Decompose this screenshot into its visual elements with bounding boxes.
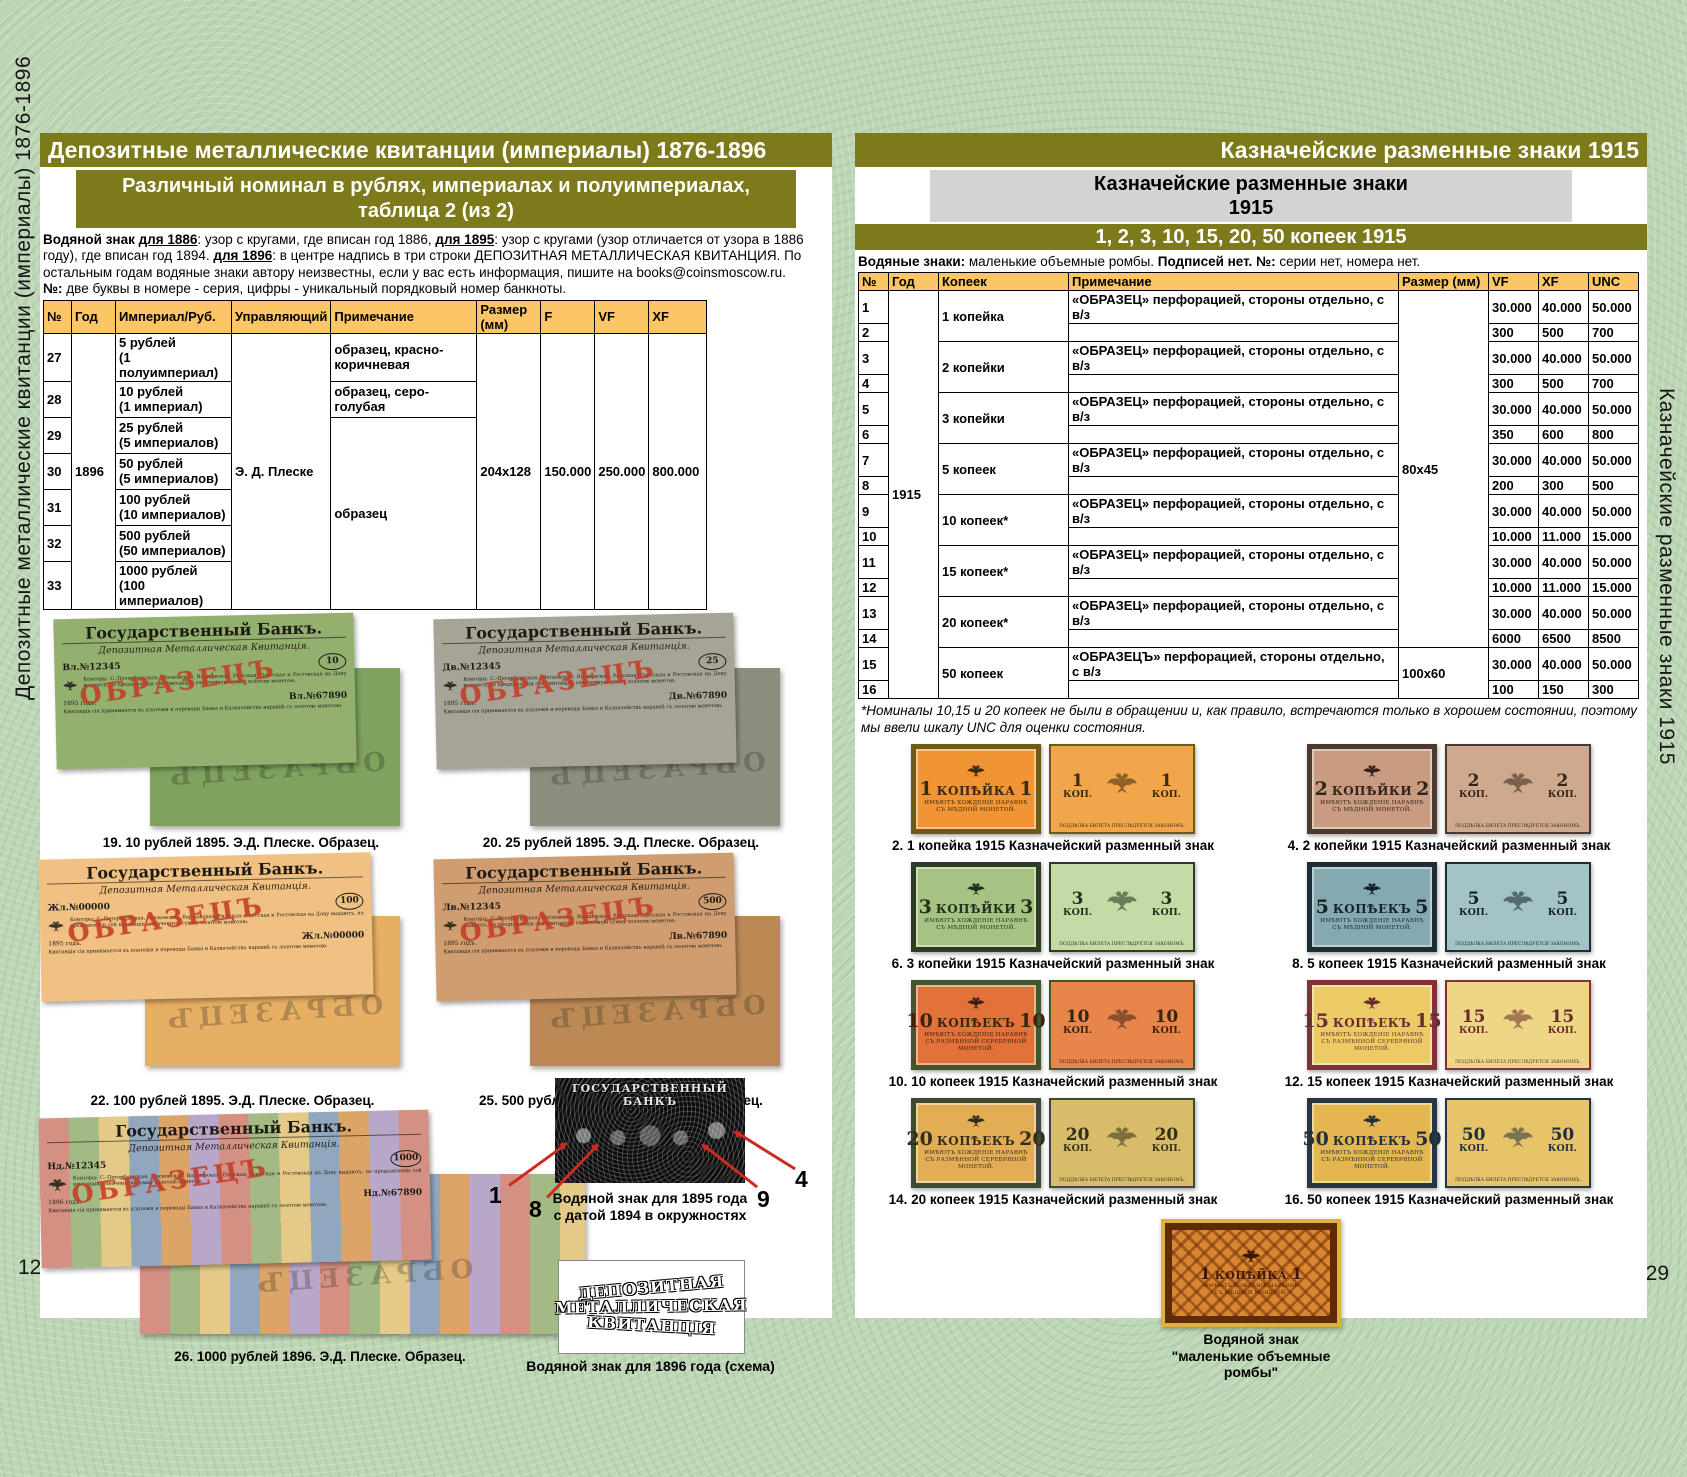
cell-xf: 300	[1539, 477, 1589, 495]
intro-segment: маленькие объемные ромбы.	[965, 254, 1158, 269]
table-row: 119151 копейка«ОБРАЗЕЦ» перфорацией, сто…	[859, 291, 1639, 324]
serial-number: Жл.№00000	[47, 902, 110, 913]
serial-number-2: Нд.№67890	[363, 1188, 422, 1199]
watermark-1895-image: ГОСУДАРСТВЕННЫЙ БАНКЪ	[555, 1078, 745, 1183]
back-small-text: ПОДДѢЛКА БИЛЕТА ПРЕСЛѢДУЕТСЯ ЗАКОНОМЪ.	[1447, 942, 1589, 947]
banknote-back-image: 50КОП.50КОП.ПОДДѢЛКА БИЛЕТА ПРЕСЛѢДУЕТСЯ…	[1445, 1098, 1591, 1188]
banknote-caption: 10. 10 копеек 1915 Казначейский разменны…	[883, 1074, 1223, 1089]
table-row: 32 копейки«ОБРАЗЕЦ» перфорацией, стороны…	[859, 342, 1639, 375]
serial-number: Нд.№12345	[47, 1160, 106, 1171]
figure-caption: 20. 25 рублей 1895. Э.Д. Плеске. Образец…	[435, 835, 807, 850]
cell-no: 14	[859, 630, 889, 648]
denomination-line: 50КОПѢЕКЪ50	[1302, 1128, 1441, 1150]
cell-vf: 200	[1489, 477, 1539, 495]
intro-segment: для 1895	[435, 232, 494, 247]
denomination-badge: 500	[698, 893, 726, 911]
cell-size: 100x60	[1399, 648, 1489, 699]
cell-year: 1915	[889, 291, 939, 699]
cell-no: 31	[44, 489, 72, 525]
imperial-eagle-icon	[1501, 889, 1535, 913]
denomination-line: 1КОПѢЙКА1	[919, 778, 1032, 800]
banknote-front-image: Государственный Банкъ.Депозитная Металли…	[53, 612, 356, 769]
imperial-eagle-icon	[1105, 1125, 1139, 1149]
cell-f: 150.000	[541, 333, 595, 609]
serial-number-2: Дв.№67890	[669, 691, 728, 702]
column-header: Год	[889, 273, 939, 291]
cell-unc: 50.000	[1589, 495, 1639, 528]
denomination-line: 5КОПѢЕКЪ5	[1316, 896, 1429, 918]
figure-caption: 22. 100 рублей 1895. Э.Д. Плеске. Образе…	[40, 1093, 425, 1108]
cell-unc: 50.000	[1589, 291, 1639, 324]
right-watermark-figure: 1КОПѢЙКА1 ИМѢЮТЪ ХОЖДЕНІЕ НАРАВНѢ СЪ МѢД…	[855, 1219, 1647, 1381]
serial-number: Дв.№12345	[442, 661, 501, 672]
intro-segment: Водяные знаки:	[858, 254, 965, 269]
cell-note: «ОБРАЗЕЦ» перфорацией, стороны отдельно,…	[1069, 393, 1399, 426]
imperial-eagle-icon	[1105, 771, 1139, 795]
serial-number: Вл.№12345	[62, 661, 120, 672]
back-eagle	[1501, 889, 1535, 918]
cell-note: «ОБРАЗЕЦ» перфорацией, стороны отдельно,…	[1069, 546, 1399, 579]
imperial-eagle-icon	[443, 917, 458, 935]
banknote-caption: 16. 50 копеек 1915 Казначейский разменны…	[1279, 1192, 1619, 1207]
left-catalog-table: №ГодИмпериал/Руб.УправляющийПримечаниеРа…	[43, 300, 707, 610]
figure-caption: 19. 10 рублей 1895. Э.Д. Плеске. Образец…	[55, 835, 427, 850]
column-header: Размер (мм)	[477, 300, 541, 333]
back-corner-value: 2КОП.	[1548, 773, 1577, 800]
cell-xf: 40.000	[1539, 291, 1589, 324]
denomination-badge: 1000	[390, 1150, 421, 1168]
banknote-front-image: Государственный Банкъ.Депозитная Металли…	[433, 612, 736, 769]
banknote-pair: 1КОПѢЙКА1ИМѢЮТЪ ХОЖДЕНІЕ НАРАВНѢСЪ МѢДНО…	[883, 744, 1223, 834]
denomination-line: 3КОПѢЙКИ3	[919, 896, 1034, 918]
banknote-back-image: 15КОП.15КОП.ПОДДѢЛКА БИЛЕТА ПРЕСЛѢДУЕТСЯ…	[1445, 980, 1591, 1070]
cell-unc: 50.000	[1589, 546, 1639, 579]
cell-size: 204x128	[477, 333, 541, 609]
cell-kopek: 5 копеек	[939, 444, 1069, 495]
banknote-pair: 15КОПѢЕКЪ15ИМѢЮТЪ ХОЖДЕНІЕ НАРАВНѢСЪ РАЗ…	[1279, 980, 1619, 1070]
banknote-caption: 6. 3 копейки 1915 Казначейский разменный…	[883, 956, 1223, 971]
back-corner-value: 3КОП.	[1063, 891, 1092, 918]
cell-unc: 500	[1589, 477, 1639, 495]
watermark-1896-schematic: ДЕПОЗИТНАЯМЕТАЛЛИЧЕСКАЯКВИТАНЦІЯ	[558, 1260, 745, 1354]
cell-vf: 30.000	[1489, 495, 1539, 528]
right-section-line2: 1915	[930, 196, 1572, 220]
imperial-eagle-icon	[1501, 1007, 1535, 1031]
imperial-eagle-icon	[1362, 1114, 1382, 1128]
cell-no: 15	[859, 648, 889, 681]
banknote-group: 20КОПѢЕКЪ20ИМѢЮТЪ ХОЖДЕНІЕ НАРАВНѢСЪ РАЗ…	[883, 1098, 1223, 1207]
cell-vf: 10.000	[1489, 579, 1539, 597]
banknote-pair: 3КОПѢЙКИ3ИМѢЮТЪ ХОЖДЕНІЕ НАРАВНѢСЪ МѢДНО…	[883, 862, 1223, 952]
cell-kopek: 50 копеек	[939, 648, 1069, 699]
cell-vf: 250.000	[595, 333, 649, 609]
cell-denomination: 5 рублей(1 полуимпериал)	[116, 333, 232, 381]
cell-no: 2	[859, 324, 889, 342]
banknote-figure: ОБРАЗЕЦЪГосударственный Банкъ.Депозитная…	[435, 856, 807, 1108]
left-subtitle-line2: таблица 2 (из 2)	[76, 199, 796, 224]
cell-no: 32	[44, 525, 72, 561]
cell-no: 5	[859, 393, 889, 426]
watermark-1895-figure: ГОСУДАРСТВЕННЫЙ БАНКЪ1894Водяной знак дл…	[485, 1078, 815, 1254]
cell-xf: 40.000	[1539, 648, 1589, 681]
imperial-eagle-icon	[1362, 882, 1382, 896]
cell-unc: 700	[1589, 375, 1639, 393]
intro-segment: серии нет, номера нет.	[1276, 254, 1421, 269]
watermark-1896-figure: ДЕПОЗИТНАЯМЕТАЛЛИЧЕСКАЯКВИТАНЦІЯВодяной …	[508, 1260, 793, 1376]
column-header: XF	[1539, 273, 1589, 291]
cell-note: образец, красно-коричневая	[331, 333, 477, 381]
table-row: 910 копеек*«ОБРАЗЕЦ» перфорацией, сторон…	[859, 495, 1639, 528]
front-small-text: СЪ РАЗМѢННОЙ СЕРЕБРЯНОЙ МОНЕТОЙ.	[1312, 1157, 1432, 1171]
cell-xf: 40.000	[1539, 546, 1589, 579]
banknote-back-image: 3КОП.3КОП.ПОДДѢЛКА БИЛЕТА ПРЕСЛѢДУЕТСЯ З…	[1049, 862, 1195, 952]
front-small-text: СЪ МѢДНОЙ МОНЕТОЙ.	[1332, 807, 1412, 814]
banknote-back-image: 10КОП.10КОП.ПОДДѢЛКА БИЛЕТА ПРЕСЛѢДУЕТСЯ…	[1049, 980, 1195, 1070]
cell-unc: 50.000	[1589, 597, 1639, 630]
cell-note-empty	[1069, 477, 1399, 495]
table-row: 1320 копеек*«ОБРАЗЕЦ» перфорацией, сторо…	[859, 597, 1639, 630]
cell-no: 27	[44, 333, 72, 381]
table-row: 53 копейки«ОБРАЗЕЦ» перфорацией, стороны…	[859, 393, 1639, 426]
cell-unc: 300	[1589, 681, 1639, 699]
banknote-back-image: 2КОП.2КОП.ПОДДѢЛКА БИЛЕТА ПРЕСЛѢДУЕТСЯ З…	[1445, 744, 1591, 834]
front-small-text: ИМѢЮТЪ ХОЖДЕНІЕ НАРАВНѢ	[1320, 800, 1424, 807]
cell-kopek: 10 копеек*	[939, 495, 1069, 546]
intro-segment: Подписей нет.	[1158, 254, 1253, 269]
front-small-text: ИМѢЮТЪ ХОЖДЕНІЕ НАРАВНѢ	[924, 918, 1028, 925]
cell-vf: 30.000	[1489, 444, 1539, 477]
left-sidebar-label: Депозитные металлические квитанции (импе…	[12, 56, 36, 700]
front-small-text: СЪ МѢДНОЙ МОНЕТОЙ.	[1332, 925, 1412, 932]
imperial-eagle-icon	[966, 882, 986, 896]
intro-segment: две буквы в номере - серия, цифры - уник…	[63, 281, 567, 296]
banknote-pair: 10КОПѢЕКЪ10ИМѢЮТЪ ХОЖДЕНІЕ НАРАВНѢСЪ РАЗ…	[883, 980, 1223, 1070]
cell-no: 9	[859, 495, 889, 528]
table-row: 1115 копеек*«ОБРАЗЕЦ» перфорацией, сторо…	[859, 546, 1639, 579]
cell-unc: 15.000	[1589, 528, 1639, 546]
imperial-eagle-icon	[966, 764, 986, 778]
cell-denomination: 500 рублей(50 империалов)	[116, 525, 232, 561]
column-header: Управляющий	[232, 300, 331, 333]
intro-segment: Водяной знак	[43, 232, 139, 247]
right-page: Казначейские разменные знаки 1915 Казнач…	[855, 133, 1647, 1318]
right-footnote: *Номиналы 10,15 и 20 копеек не были в об…	[861, 703, 1641, 735]
banknote-front-image: 15КОПѢЕКЪ15ИМѢЮТЪ ХОЖДЕНІЕ НАРАВНѢСЪ РАЗ…	[1307, 980, 1437, 1070]
cell-no: 33	[44, 561, 72, 609]
cell-no: 16	[859, 681, 889, 699]
serial-number: Лв.№12345	[442, 901, 501, 912]
front-small-text: ИМѢЮТЪ ХОЖДЕНІЕ НАРАВНѢ	[1320, 918, 1424, 925]
cell-note: «ОБРАЗЕЦЪ» перфорацией, стороны отдельно…	[1069, 648, 1399, 681]
cell-unc: 15.000	[1589, 579, 1639, 597]
cell-unc: 8500	[1589, 630, 1639, 648]
cell-no: 12	[859, 579, 889, 597]
cell-no: 13	[859, 597, 889, 630]
banknote-group: 15КОПѢЕКЪ15ИМѢЮТЪ ХОЖДЕНІЕ НАРАВНѢСЪ РАЗ…	[1279, 980, 1619, 1089]
back-eagle	[1105, 1007, 1139, 1036]
back-corner-value: 5КОП.	[1459, 891, 1488, 918]
cell-unc: 50.000	[1589, 393, 1639, 426]
banknote-group: 50КОПѢЕКЪ50ИМѢЮТЪ ХОЖДЕНІЕ НАРАВНѢСЪ РАЗ…	[1279, 1098, 1619, 1207]
banknote-pair: 20КОПѢЕКЪ20ИМѢЮТЪ ХОЖДЕНІЕ НАРАВНѢСЪ РАЗ…	[883, 1098, 1223, 1188]
cell-size: 80x45	[1399, 291, 1489, 648]
cell-vf: 10.000	[1489, 528, 1539, 546]
cell-xf: 600	[1539, 426, 1589, 444]
serial-number-2: Вл.№67890	[289, 691, 347, 702]
banknote-back-image: 5КОП.5КОП.ПОДДѢЛКА БИЛЕТА ПРЕСЛѢДУЕТСЯ З…	[1445, 862, 1591, 952]
back-corner-value: 1КОП.	[1063, 773, 1092, 800]
cell-vf: 6000	[1489, 630, 1539, 648]
banknote-front-image: Государственный Банкъ.Депозитная Металли…	[433, 852, 736, 1001]
left-page-title: Депозитные металлические квитанции (импе…	[40, 133, 832, 167]
column-header: Размер (мм)	[1399, 273, 1489, 291]
column-header: Копеек	[939, 273, 1069, 291]
cell-denomination: 10 рублей(1 империал)	[116, 381, 232, 417]
imperial-eagle-icon	[1501, 771, 1535, 795]
banknote-front-image: Государственный Банкъ.Депозитная Металли…	[38, 852, 373, 1001]
cell-xf: 150	[1539, 681, 1589, 699]
imperial-eagle-icon	[1105, 1007, 1139, 1031]
back-corner-value: 10КОП.	[1063, 1009, 1092, 1036]
right-catalog-table: №ГодКопеекПримечаниеРазмер (мм)VFXFUNC 1…	[858, 272, 1639, 699]
cell-kopek: 15 копеек*	[939, 546, 1069, 597]
intro-segment: для 1886	[139, 232, 198, 247]
back-eagle	[1105, 889, 1139, 918]
column-header: UNC	[1589, 273, 1639, 291]
cell-no: 7	[859, 444, 889, 477]
left-table-header-row: №ГодИмпериал/Руб.УправляющийПримечаниеРа…	[44, 300, 707, 333]
back-small-text: ПОДДѢЛКА БИЛЕТА ПРЕСЛѢДУЕТСЯ ЗАКОНОМЪ.	[1051, 824, 1193, 829]
cell-no: 4	[859, 375, 889, 393]
column-header: XF	[649, 300, 707, 333]
serial-number-2: Жл.№00000	[302, 930, 365, 941]
banknote-front-image: 10КОПѢЕКЪ10ИМѢЮТЪ ХОЖДЕНІЕ НАРАВНѢСЪ РАЗ…	[911, 980, 1041, 1070]
cell-unc: 50.000	[1589, 342, 1639, 375]
column-header: VF	[595, 300, 649, 333]
cell-note-empty	[1069, 579, 1399, 597]
cell-vf: 30.000	[1489, 291, 1539, 324]
back-small-text: ПОДДѢЛКА БИЛЕТА ПРЕСЛѢДУЕТСЯ ЗАКОНОМЪ.	[1447, 824, 1589, 829]
imperial-eagle-icon	[1362, 996, 1382, 1010]
banknote-figure: ОБРАЗЕЦЪГосударственный Банкъ.Депозитная…	[40, 856, 425, 1108]
watermark-1895-caption: Водяной знак для 1895 годас датой 1894 в…	[525, 1190, 775, 1224]
right-page-title: Казначейские разменные знаки 1915	[855, 133, 1647, 167]
cell-denomination: 25 рублей(5 империалов)	[116, 417, 232, 453]
watermark-note-image: 1КОПѢЙКА1 ИМѢЮТЪ ХОЖДЕНІЕ НАРАВНѢ СЪ МѢД…	[1161, 1219, 1341, 1327]
cell-vf: 30.000	[1489, 342, 1539, 375]
banknote-back-image: 1КОП.1КОП.ПОДДѢЛКА БИЛЕТА ПРЕСЛѢДУЕТСЯ З…	[1049, 744, 1195, 834]
right-watermark-caption: Водяной знак "маленькие объемные ромбы"	[855, 1331, 1647, 1381]
intro-segment: : узор с кругами, где вписан год 1886,	[197, 232, 435, 247]
cell-xf: 500	[1539, 324, 1589, 342]
imperial-eagle-icon	[1501, 1125, 1535, 1149]
back-eagle	[1501, 1125, 1535, 1154]
imperial-eagle-icon	[443, 677, 458, 695]
cell-denomination: 100 рублей(10 империалов)	[116, 489, 232, 525]
imperial-eagle-icon	[966, 1114, 986, 1128]
cell-no: 29	[44, 417, 72, 453]
watermark-image-title: ГОСУДАРСТВЕННЫЙ БАНКЪ	[555, 1082, 745, 1108]
cell-note: «ОБРАЗЕЦ» перфорацией, стороны отдельно,…	[1069, 597, 1399, 630]
cell-note-empty	[1069, 324, 1399, 342]
cell-no: 28	[44, 381, 72, 417]
cell-no: 6	[859, 426, 889, 444]
back-corner-value: 10КОП.	[1152, 1009, 1181, 1036]
right-section-line1: Казначейские разменные знаки	[930, 172, 1572, 196]
cell-unc: 50.000	[1589, 444, 1639, 477]
back-corner-value: 20КОП.	[1152, 1127, 1181, 1154]
column-header: VF	[1489, 273, 1539, 291]
front-small-text: ИМѢЮТЪ ХОЖДЕНІЕ НАРАВНѢ	[924, 800, 1028, 807]
banknote-front-image: 2КОПѢЙКИ2ИМѢЮТЪ ХОЖДЕНІЕ НАРАВНѢСЪ МѢДНО…	[1307, 744, 1437, 834]
cell-kopek: 2 копейки	[939, 342, 1069, 393]
intro-segment: для 1896	[213, 248, 272, 263]
back-corner-value: 15КОП.	[1548, 1009, 1577, 1036]
cell-vf: 30.000	[1489, 597, 1539, 630]
banknote-group: 3КОПѢЙКИ3ИМѢЮТЪ ХОЖДЕНІЕ НАРАВНѢСЪ МѢДНО…	[883, 862, 1223, 971]
back-eagle	[1501, 771, 1535, 800]
banknote-group: 10КОПѢЕКЪ10ИМѢЮТЪ ХОЖДЕНІЕ НАРАВНѢСЪ РАЗ…	[883, 980, 1223, 1089]
imperial-eagle-icon	[1362, 764, 1382, 778]
cell-note-empty	[1069, 630, 1399, 648]
cell-unc: 700	[1589, 324, 1639, 342]
back-small-text: ПОДДѢЛКА БИЛЕТА ПРЕСЛѢДУЕТСЯ ЗАКОНОМЪ.	[1447, 1178, 1589, 1183]
banknote-group: 2КОПѢЙКИ2ИМѢЮТЪ ХОЖДЕНІЕ НАРАВНѢСЪ МѢДНО…	[1279, 744, 1619, 853]
serial-number-2: Лв.№67890	[669, 931, 728, 942]
cell-kopek: 1 копейка	[939, 291, 1069, 342]
imperial-eagle-icon	[1105, 889, 1139, 913]
denomination-badge: 25	[698, 653, 726, 671]
banknote-pair: 5КОПѢЕКЪ5ИМѢЮТЪ ХОЖДЕНІЕ НАРАВНѢСЪ МѢДНО…	[1279, 862, 1619, 952]
table-row: 75 копеек«ОБРАЗЕЦ» перфорацией, стороны …	[859, 444, 1639, 477]
denomination-badge: 100	[335, 892, 363, 910]
column-header: Империал/Руб.	[116, 300, 232, 333]
cell-denomination: 1000 рублей(100 империалов)	[116, 561, 232, 609]
cell-xf: 40.000	[1539, 342, 1589, 375]
denomination-line: 15КОПѢЕКЪ15	[1302, 1010, 1441, 1032]
cell-note-empty	[1069, 426, 1399, 444]
banknote-pair: 2КОПѢЙКИ2ИМѢЮТЪ ХОЖДЕНІЕ НАРАВНѢСЪ МѢДНО…	[1279, 744, 1619, 834]
left-figures-area: ОБРАЗЕЦЪГосударственный Банкъ.Депозитная…	[40, 616, 832, 1376]
cell-vf: 30.000	[1489, 648, 1539, 681]
cell-vf: 100	[1489, 681, 1539, 699]
cell-xf: 11.000	[1539, 528, 1589, 546]
watermark-1896-caption: Водяной знак для 1896 года (схема)	[508, 1358, 793, 1375]
denomination-line: 10КОПѢЕКЪ10	[906, 1010, 1045, 1032]
cell-no: 1	[859, 291, 889, 324]
back-corner-value: 5КОП.	[1548, 891, 1577, 918]
table-row: 2718965 рублей(1 полуимпериал)Э. Д. Плес…	[44, 333, 707, 381]
watermark-callout-number: 4	[795, 1166, 808, 1193]
cell-xf: 11.000	[1539, 579, 1589, 597]
callout-arrow	[738, 1133, 795, 1170]
banknote-front-image: 50КОПѢЕКЪ50ИМѢЮТЪ ХОЖДЕНІЕ НАРАВНѢСЪ РАЗ…	[1307, 1098, 1437, 1188]
right-section-title: Казначейские разменные знаки 1915	[930, 170, 1572, 222]
column-header: №	[44, 300, 72, 333]
back-corner-value: 50КОП.	[1548, 1127, 1577, 1154]
back-corner-value: 20КОП.	[1063, 1127, 1092, 1154]
banknote-figure: ОБРАЗЕЦЪГосударственный Банкъ.Депозитная…	[55, 616, 427, 850]
denomination-line: 20КОПѢЕКЪ20	[906, 1128, 1045, 1150]
cell-note: «ОБРАЗЕЦ» перфорацией, стороны отдельно,…	[1069, 291, 1399, 324]
imperial-eagle-icon	[966, 996, 986, 1010]
banknote-front-image: Государственный Банкъ.Депозитная Металли…	[38, 1109, 431, 1268]
cell-unc: 800	[1589, 426, 1639, 444]
back-small-text: ПОДДѢЛКА БИЛЕТА ПРЕСЛѢДУЕТСЯ ЗАКОНОМЪ.	[1447, 1060, 1589, 1065]
back-corner-value: 3КОП.	[1152, 891, 1181, 918]
front-small-text: СЪ МѢДНОЙ МОНЕТОЙ.	[936, 807, 1016, 814]
banknote-back-image: 20КОП.20КОП.ПОДДѢЛКА БИЛЕТА ПРЕСЛѢДУЕТСЯ…	[1049, 1098, 1195, 1188]
cell-note: «ОБРАЗЕЦ» перфорацией, стороны отдельно,…	[1069, 495, 1399, 528]
cell-vf: 300	[1489, 375, 1539, 393]
imperial-eagle-icon	[48, 917, 65, 935]
cell-denomination: 50 рублей(5 империалов)	[116, 453, 232, 489]
banknote-group: 1КОПѢЙКА1ИМѢЮТЪ ХОЖДЕНІЕ НАРАВНѢСЪ МѢДНО…	[883, 744, 1223, 853]
back-corner-value: 50КОП.	[1459, 1127, 1488, 1154]
intro-segment: №:	[43, 281, 63, 296]
cell-no: 8	[859, 477, 889, 495]
column-header: F	[541, 300, 595, 333]
right-banknote-grid: 1КОПѢЙКА1ИМѢЮТЪ ХОЖДЕНІЕ НАРАВНѢСЪ МѢДНО…	[855, 736, 1647, 1207]
denomination-line: 2КОПѢЙКИ2	[1315, 778, 1430, 800]
cell-note: «ОБРАЗЕЦ» перфорацией, стороны отдельно,…	[1069, 444, 1399, 477]
back-small-text: ПОДДѢЛКА БИЛЕТА ПРЕСЛѢДУЕТСЯ ЗАКОНОМЪ.	[1051, 1060, 1193, 1065]
cell-xf: 40.000	[1539, 444, 1589, 477]
banknote-front-image: 1КОПѢЙКА1ИМѢЮТЪ ХОЖДЕНІЕ НАРАВНѢСЪ МѢДНО…	[911, 744, 1041, 834]
back-eagle	[1105, 1125, 1139, 1154]
back-small-text: ПОДДѢЛКА БИЛЕТА ПРЕСЛѢДУЕТСЯ ЗАКОНОМЪ.	[1051, 1178, 1193, 1183]
cell-note-empty	[1069, 681, 1399, 699]
cell-xf: 40.000	[1539, 393, 1589, 426]
cell-year: 1896	[72, 333, 116, 609]
cell-xf: 500	[1539, 375, 1589, 393]
column-header: №	[859, 273, 889, 291]
left-subtitle-line1: Различный номинал в рублях, империалах и…	[76, 174, 796, 199]
imperial-eagle-icon	[48, 1176, 68, 1194]
banknote-caption: 12. 15 копеек 1915 Казначейский разменны…	[1279, 1074, 1619, 1089]
left-page-subtitle: Различный номинал в рублях, империалах и…	[76, 170, 796, 228]
right-sidebar-label: Казначейские разменные знаки 1915	[1654, 388, 1678, 765]
cell-vf: 300	[1489, 324, 1539, 342]
banknote-caption: 4. 2 копейки 1915 Казначейский разменный…	[1279, 838, 1619, 853]
banknote-front-image: 5КОПѢЕКЪ5ИМѢЮТЪ ХОЖДЕНІЕ НАРАВНѢСЪ МѢДНО…	[1307, 862, 1437, 952]
left-intro-text: Водяной знак для 1886: узор с кругами, г…	[43, 232, 829, 298]
intro-segment: №:	[1256, 254, 1276, 269]
cell-no: 11	[859, 546, 889, 579]
front-small-text: СЪ РАЗМѢННОЙ СЕРЕБРЯНОЙ МОНЕТОЙ.	[916, 1157, 1036, 1171]
column-header: Примечание	[331, 300, 477, 333]
banknote-figure: ОБРАЗЕЦЪГосударственный Банкъ.Депозитная…	[435, 616, 807, 850]
cell-note: образец	[331, 417, 477, 609]
cell-xf: 800.000	[649, 333, 707, 609]
banknote-pair: 50КОПѢЕКЪ50ИМѢЮТЪ ХОЖДЕНІЕ НАРАВНѢСЪ РАЗ…	[1279, 1098, 1619, 1188]
column-header: Год	[72, 300, 116, 333]
banknote-caption: 14. 20 копеек 1915 Казначейский разменны…	[883, 1192, 1223, 1207]
right-table-header-row: №ГодКопеекПримечаниеРазмер (мм)VFXFUNC	[859, 273, 1639, 291]
right-denoms-bar: 1, 2, 3, 10, 15, 20, 50 копеек 1915	[855, 224, 1647, 250]
cell-unc: 50.000	[1589, 648, 1639, 681]
cell-no: 3	[859, 342, 889, 375]
cell-note: «ОБРАЗЕЦ» перфорацией, стороны отдельно,…	[1069, 342, 1399, 375]
cell-note-empty	[1069, 528, 1399, 546]
cell-no: 10	[859, 528, 889, 546]
cell-note-empty	[1069, 375, 1399, 393]
watermark-callout-number: 1	[489, 1182, 502, 1209]
back-corner-value: 2КОП.	[1459, 773, 1488, 800]
right-intro-text: Водяные знаки: маленькие объемные ромбы.…	[858, 254, 1644, 270]
front-small-text: СЪ МѢДНОЙ МОНЕТОЙ.	[936, 925, 1016, 932]
cell-vf: 350	[1489, 426, 1539, 444]
